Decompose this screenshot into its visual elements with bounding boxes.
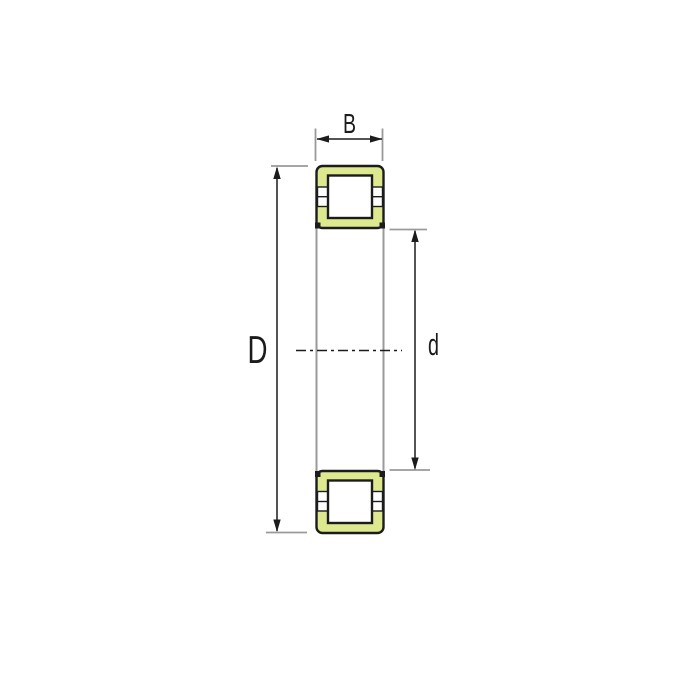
chamfer-mark-bottom-left xyxy=(315,223,321,229)
dimension-d: d xyxy=(390,230,440,471)
arrowhead-B-right xyxy=(370,135,383,142)
arrowhead-d-bottom xyxy=(411,458,418,471)
chamfer-mark-top-left xyxy=(315,471,321,477)
dimension-label-B: B xyxy=(343,108,356,139)
dimension-label-d: d xyxy=(428,327,439,362)
chamfer-mark-top-right xyxy=(380,471,386,477)
bearing-cross-section-diagram: B D d xyxy=(0,0,700,700)
dimension-label-D: D xyxy=(248,329,268,372)
arrowhead-D-bottom xyxy=(273,520,280,533)
bearing-bottom-section xyxy=(315,471,385,533)
bearing-top-section xyxy=(315,166,385,229)
chamfer-mark-bottom-right xyxy=(380,223,386,229)
arrowhead-D-top xyxy=(273,167,280,180)
dimension-D: D xyxy=(248,166,309,533)
roller-section-bottom xyxy=(328,481,372,524)
arrowhead-d-top xyxy=(411,230,418,243)
dimension-B: B xyxy=(316,108,383,161)
roller-section-top xyxy=(328,176,372,219)
arrowhead-B-left xyxy=(317,135,330,142)
drawing-canvas: B D d xyxy=(0,0,700,700)
